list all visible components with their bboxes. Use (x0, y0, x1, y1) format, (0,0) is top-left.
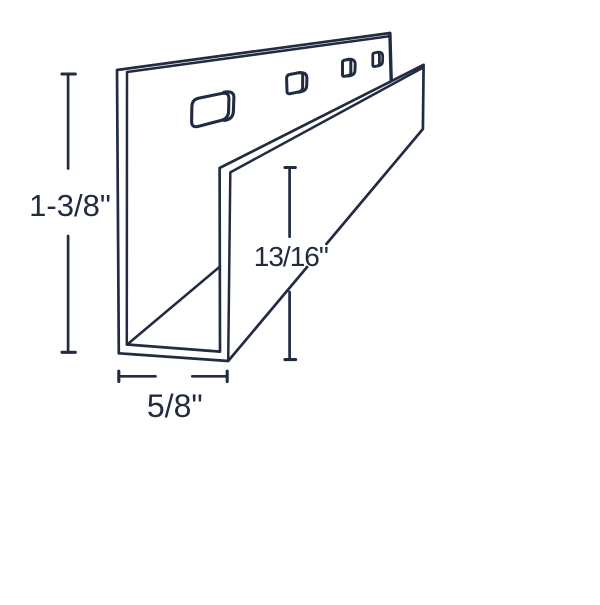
svg-text:1-3/8": 1-3/8" (29, 188, 111, 223)
svg-text:5/8": 5/8" (147, 388, 203, 424)
svg-text:13/16": 13/16" (254, 241, 328, 272)
